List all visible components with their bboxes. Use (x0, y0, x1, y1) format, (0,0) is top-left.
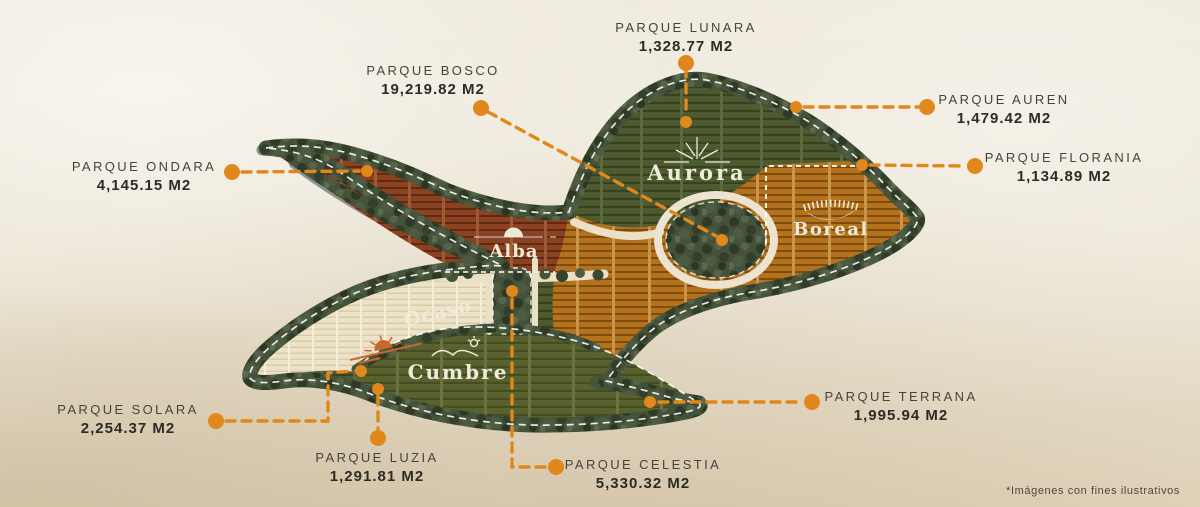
park-label-florania: PARQUE FLORANIA 1,134.89 M2 (985, 150, 1144, 186)
map-dot-auren[interactable] (790, 101, 802, 113)
map-dot-solara[interactable] (355, 365, 367, 377)
map-dot-luzia[interactable] (372, 383, 384, 395)
park-label-ondara: PARQUE ONDARA 4,145.15 M2 (72, 159, 216, 195)
zone-label-cumbre: Cumbre (408, 360, 509, 384)
park-name: PARQUE LUZIA (315, 450, 438, 467)
label-dot-solara[interactable] (208, 413, 224, 429)
park-name: PARQUE BOSCO (366, 63, 499, 80)
park-name: PARQUE AUREN (938, 92, 1069, 109)
label-dot-celestia[interactable] (548, 459, 564, 475)
park-label-terrana: PARQUE TERRANA 1,995.94 M2 (824, 389, 977, 425)
park-area: 2,254.37 M2 (57, 420, 199, 438)
park-area: 1,328.77 M2 (615, 38, 756, 56)
park-name: PARQUE SOLARA (57, 402, 199, 419)
label-dot-florania[interactable] (967, 158, 983, 174)
park-name: PARQUE FLORANIA (985, 150, 1144, 167)
park-area: 1,134.89 M2 (985, 168, 1144, 186)
label-dot-bosco[interactable] (473, 100, 489, 116)
park-label-solara: PARQUE SOLARA 2,254.37 M2 (57, 402, 199, 438)
label-dot-ondara[interactable] (224, 164, 240, 180)
park-name: PARQUE CELESTIA (565, 457, 721, 474)
leader-florania (870, 165, 965, 166)
map-dot-bosco[interactable] (716, 234, 728, 246)
map-dot-celestia[interactable] (506, 285, 518, 297)
park-name: PARQUE LUNARA (615, 20, 756, 37)
map-dot-ondara[interactable] (361, 165, 373, 177)
map-dot-florania[interactable] (856, 159, 868, 171)
leader-ondara (242, 171, 359, 172)
park-label-bosco: PARQUE BOSCO 19,219.82 M2 (366, 63, 499, 99)
park-name: PARQUE TERRANA (824, 389, 977, 406)
park-label-lunara: PARQUE LUNARA 1,328.77 M2 (615, 20, 756, 56)
park-area: 1,479.42 M2 (938, 110, 1069, 128)
park-label-luzia: PARQUE LUZIA 1,291.81 M2 (315, 450, 438, 486)
map-dot-terrana[interactable] (644, 396, 656, 408)
park-name: PARQUE ONDARA (72, 159, 216, 176)
master-plan-illustration: Aurora Boreal Alba Ocaso (0, 0, 1200, 507)
park-area: 19,219.82 M2 (366, 81, 499, 99)
zone-label-aurora: Aurora (646, 160, 746, 185)
park-area: 1,995.94 M2 (824, 407, 977, 425)
disclaimer-footnote: *Imágenes con fines ilustrativos (1006, 485, 1180, 497)
map-body: Aurora Boreal Alba Ocaso (250, 79, 918, 425)
park-area: 1,291.81 M2 (315, 468, 438, 486)
map-dot-lunara[interactable] (680, 116, 692, 128)
label-dot-luzia[interactable] (370, 430, 386, 446)
park-area: 4,145.15 M2 (72, 177, 216, 195)
label-dot-terrana[interactable] (804, 394, 820, 410)
label-dot-lunara[interactable] (678, 55, 694, 71)
park-label-celestia: PARQUE CELESTIA 5,330.32 M2 (565, 457, 721, 493)
zone-label-boreal: Boreal (793, 219, 869, 240)
label-dot-auren[interactable] (919, 99, 935, 115)
zone-label-alba: Alba (488, 241, 538, 262)
park-label-auren: PARQUE AUREN 1,479.42 M2 (938, 92, 1069, 128)
park-area: 5,330.32 M2 (565, 475, 721, 493)
